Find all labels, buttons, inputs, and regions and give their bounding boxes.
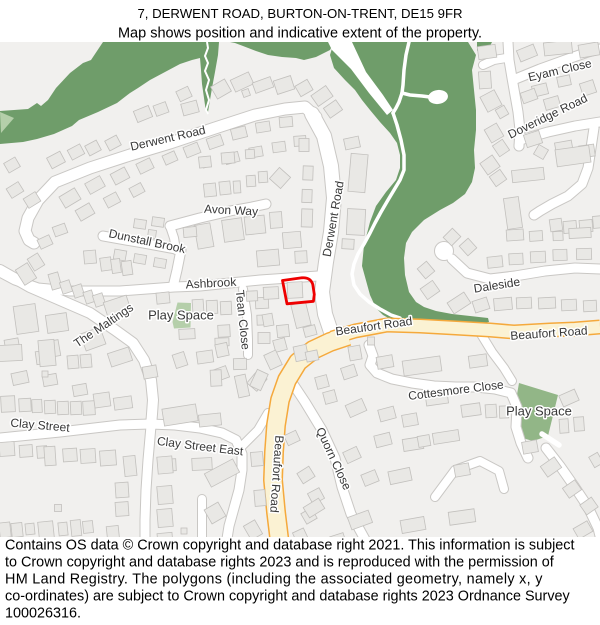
svg-text:Play Space: Play Space [148, 307, 214, 322]
svg-text:Map shows position and indicat: Map shows position and indicative extent… [118, 26, 482, 42]
svg-text:7, DERWENT ROAD, BURTON-ON-TRE: 7, DERWENT ROAD, BURTON-ON-TRENT, DE15 9… [137, 6, 462, 21]
svg-text:to Crown copyright and databas: to Crown copyright and database rights 2… [5, 555, 555, 571]
svg-text:Ashbrook: Ashbrook [185, 275, 237, 292]
svg-text:Avon Way: Avon Way [204, 202, 259, 219]
svg-text:100026316.: 100026316. [5, 606, 81, 622]
svg-text:HM Land Registry. The polygons: HM Land Registry. The polygons (includin… [5, 572, 543, 588]
svg-text:Play Space: Play Space [506, 403, 572, 418]
svg-text:co-ordinates) are subject to C: co-ordinates) are subject to Crown copyr… [5, 589, 571, 605]
svg-text:Contains OS data © Crown copyr: Contains OS data © Crown copyright and d… [5, 538, 574, 554]
